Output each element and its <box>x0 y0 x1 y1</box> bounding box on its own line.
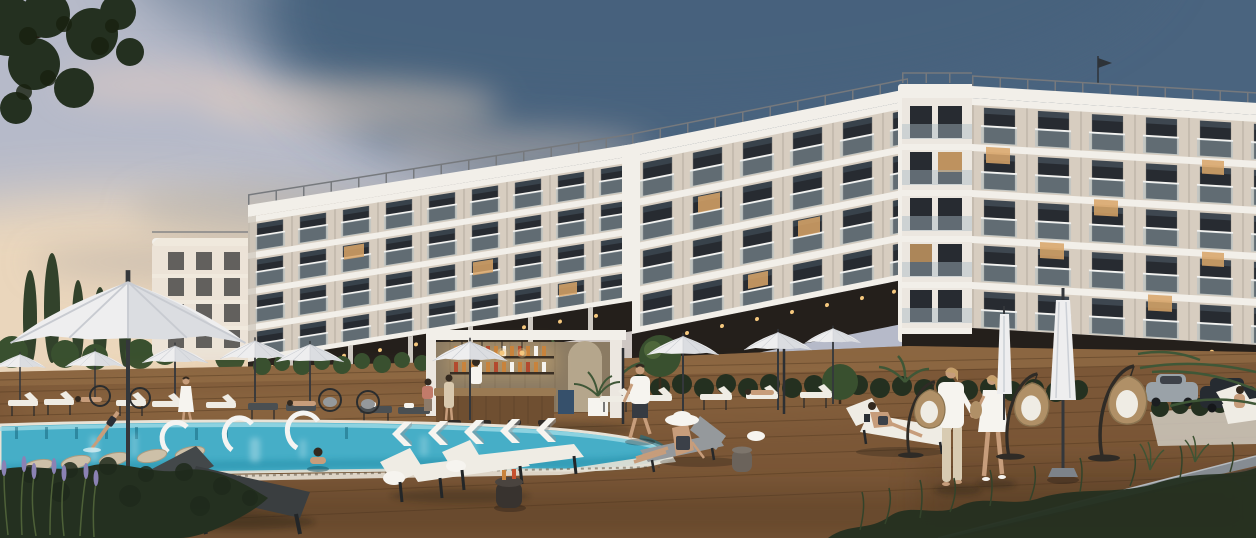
resort-rendering <box>0 0 1256 538</box>
towel-roll <box>747 431 765 441</box>
straw-bag <box>970 401 982 419</box>
cocktail <box>512 469 516 479</box>
side-stool <box>732 447 752 473</box>
rendering-stage <box>0 0 1256 538</box>
facade-grid <box>972 98 1256 345</box>
cocktail <box>502 470 506 480</box>
bar-arch-niche <box>568 341 602 375</box>
bar-canopy <box>426 330 626 340</box>
building-right-wing <box>972 76 1256 381</box>
bar-cooler <box>558 390 574 414</box>
towel-roll <box>383 471 405 485</box>
